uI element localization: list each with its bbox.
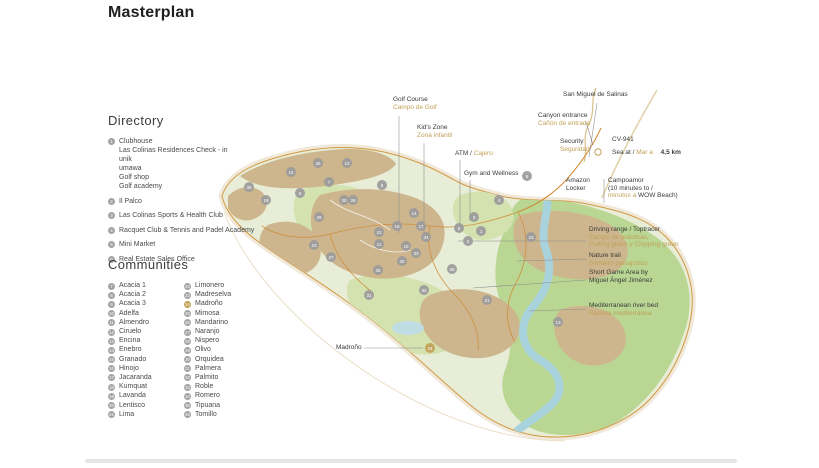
number-badge: 19	[108, 393, 115, 400]
community-item[interactable]: 32Palmito	[184, 373, 231, 382]
map-marker-number: 25	[315, 161, 321, 166]
number-badge: 36	[184, 411, 191, 418]
map-marker-number: 24	[427, 346, 433, 351]
label-security-es: Seguridad	[560, 146, 590, 153]
number-badge: 25	[184, 310, 191, 317]
community-item[interactable]: 10Adelfa	[108, 309, 170, 318]
communities-heading: Communities	[108, 257, 278, 272]
community-item-label: Tipuana	[195, 402, 220, 409]
number-badge: 8	[108, 292, 115, 299]
number-badge: 33	[184, 384, 191, 391]
label-madrono: Madroño	[336, 344, 362, 352]
community-item-label: Hinojo	[119, 365, 139, 372]
community-item[interactable]: 22Limonero	[184, 281, 231, 290]
map-marker-number: 27	[328, 255, 334, 260]
community-item[interactable]: 34Romero	[184, 391, 231, 400]
directory-list: 1ClubhouseLas Colinas Residences Check -…	[108, 137, 278, 264]
label-cv941: CV-941	[612, 136, 634, 144]
directory-item-label: Clubhouse	[119, 137, 228, 146]
label-campoamor-line1: Campoamor	[608, 177, 644, 184]
map-marker-number: 5	[458, 226, 461, 231]
number-badge: 23	[184, 292, 191, 299]
community-item-label: Palmito	[195, 374, 218, 381]
communities-column-2: 22Limonero23Madreselva24Madroño25Mimosa2…	[184, 281, 231, 419]
community-item[interactable]: 13Encina	[108, 336, 170, 345]
number-badge: 2	[108, 198, 115, 205]
number-badge: 5	[108, 241, 115, 248]
map-marker-number: 8	[381, 183, 384, 188]
label-canyon-en: Canyon entrance	[538, 112, 588, 119]
label-golf-course-en: Golf Course	[393, 96, 428, 103]
community-item[interactable]: 9Acacia 3	[108, 299, 170, 308]
label-canyon-entrance: Canyon entrance Cañón de entrada	[538, 112, 590, 127]
directory-item[interactable]: 4Racquet Club & Tennis and Padel Academy	[108, 226, 278, 235]
community-item[interactable]: 23Madreselva	[184, 290, 231, 299]
directory-item[interactable]: 1ClubhouseLas Colinas Residences Check -…	[108, 137, 278, 191]
directory-section: Directory 1ClubhouseLas Colinas Residenc…	[108, 113, 278, 269]
map-marker-number: 31	[366, 293, 372, 298]
community-item-label: Acacia 1	[119, 282, 146, 289]
community-item[interactable]: 26Mandarino	[184, 318, 231, 327]
label-campoamor-line3: WOW Beach)	[638, 192, 678, 199]
map-marker-number: 1	[480, 229, 483, 234]
number-badge: 29	[184, 347, 191, 354]
label-atm-es: Cajero	[474, 150, 493, 157]
number-badge: 18	[108, 384, 115, 391]
label-cv941-text: CV-941	[612, 136, 634, 143]
community-item[interactable]: 14Enebro	[108, 345, 170, 354]
page-title: Masterplan	[108, 4, 194, 22]
number-badge: 34	[184, 393, 191, 400]
community-item-label: Palmera	[195, 365, 221, 372]
community-item-label: Lima	[119, 411, 134, 418]
map-marker-number: 19	[403, 244, 409, 249]
number-badge: 4	[108, 227, 115, 234]
label-nature-trail: Nature trail Sendero paisajístico	[589, 252, 648, 267]
community-item[interactable]: 8Acacia 2	[108, 290, 170, 299]
directory-item-subline: umawa	[119, 164, 228, 173]
community-item-label: Limonero	[195, 282, 224, 289]
label-atm-en: ATM /	[455, 150, 474, 157]
community-item-label: Lavanda	[119, 392, 146, 399]
label-amazon-line1: Amazon	[566, 177, 590, 184]
community-item-label: Mandarino	[195, 319, 228, 326]
directory-item-subline: Golf shop	[119, 173, 228, 182]
map-marker-number: 20	[341, 198, 347, 203]
map-marker-number: 22	[376, 230, 382, 235]
number-badge: 10	[108, 310, 115, 317]
map-marker-number: 33	[413, 251, 419, 256]
label-san-miguel: San Miguel de Salinas	[563, 91, 628, 99]
map-marker-number: 29	[316, 215, 322, 220]
community-item-label: Almendro	[119, 319, 149, 326]
community-item[interactable]: 27Naranjo	[184, 327, 231, 336]
community-item-label: Acacia 3	[119, 300, 146, 307]
map-marker-number: 17	[418, 224, 424, 229]
number-badge: 31	[184, 365, 191, 372]
map-marker-number: 36	[375, 268, 381, 273]
label-gym: Gym and Wellness	[464, 170, 518, 178]
lake	[392, 321, 424, 335]
community-item[interactable]: 11Almendro	[108, 318, 170, 327]
label-driving-range-es2: Putting green y Chipping green	[589, 241, 679, 248]
community-item[interactable]: 29Olivo	[184, 345, 231, 354]
community-item[interactable]: 25Mimosa	[184, 309, 231, 318]
map-marker-number: 15	[288, 170, 294, 175]
map-marker-number: 10	[311, 243, 317, 248]
map-marker-number: 13	[555, 320, 561, 325]
community-item[interactable]: 28Nispero	[184, 336, 231, 345]
directory-item-subline: Las Colinas Residences Check - in	[119, 146, 228, 155]
label-golf-course: Golf Course Campo de Golf	[393, 96, 437, 111]
directory-item[interactable]: 3Las Colinas Sports & Health Club	[108, 211, 278, 220]
community-item-label: Acacia 2	[119, 291, 146, 298]
map-marker-number: 7	[328, 180, 331, 185]
community-item-label: Ciruelo	[119, 328, 141, 335]
label-gym-en: Gym and Wellness	[464, 170, 518, 177]
number-badge: 12	[108, 329, 115, 336]
number-badge: 7	[108, 283, 115, 290]
label-canyon-es: Cañón de entrada	[538, 120, 590, 127]
community-item[interactable]: 24Madroño	[184, 299, 231, 308]
community-item-label: Adelfa	[119, 310, 139, 317]
number-badge: 15	[108, 356, 115, 363]
community-item[interactable]: 16Hinojo	[108, 364, 170, 373]
label-sea-es: Mar a	[636, 149, 653, 156]
map-marker-number: 6	[526, 174, 529, 179]
community-item[interactable]: 35Tipuana	[184, 400, 231, 409]
community-item[interactable]: 21Lima	[108, 410, 170, 419]
community-item[interactable]: 30Orquidea	[184, 355, 231, 364]
number-badge: 28	[184, 338, 191, 345]
community-item[interactable]: 20Lentisco	[108, 400, 170, 409]
community-item-label: Granado	[119, 356, 146, 363]
label-short-game-line1: Short Game Area by	[589, 269, 648, 276]
label-driving-range-es1: Campo de prácticas,	[589, 234, 649, 241]
label-short-game-line2: Miguel Ángel Jiménez	[589, 277, 653, 284]
community-item-label: Roble	[195, 383, 213, 390]
directory-item[interactable]: 2Il Palco	[108, 197, 278, 206]
label-security: Security Seguridad	[560, 138, 590, 153]
map-marker-number: 32	[421, 288, 427, 293]
map-marker-number: 16	[394, 224, 400, 229]
bottom-divider	[85, 459, 737, 463]
map-marker-number: 12	[344, 161, 350, 166]
number-badge: 16	[108, 365, 115, 372]
community-item[interactable]: 17Jacaranda	[108, 373, 170, 382]
label-campoamor-es: minutos a	[608, 192, 638, 199]
label-river-bed-es: Rambla mediterránea	[589, 310, 652, 317]
directory-heading: Directory	[108, 113, 278, 128]
map-marker-number: 26	[449, 267, 455, 272]
map-marker-number: 23	[528, 235, 534, 240]
community-item-label: Madroño	[195, 300, 223, 307]
map-marker-number: 2	[467, 239, 470, 244]
map-marker-number: 21	[484, 298, 490, 303]
label-nature-trail-es: Sendero paisajístico	[589, 260, 648, 267]
number-badge: 30	[184, 356, 191, 363]
directory-item-label: Las Colinas Sports & Health Club	[119, 211, 223, 220]
number-badge: 17	[108, 374, 115, 381]
label-sea-en: Sea at /	[612, 149, 634, 156]
community-item-label: Kumquat	[119, 383, 147, 390]
directory-item-label: Mini Market	[119, 240, 155, 249]
label-amazon-line2: Locker	[566, 185, 586, 192]
number-badge: 32	[184, 374, 191, 381]
label-driving-range: Driving range / Toptracer Campo de práct…	[589, 226, 679, 249]
community-item-label: Enebro	[119, 346, 142, 353]
directory-item[interactable]: 5Mini Market	[108, 240, 278, 249]
number-badge: 24	[184, 301, 191, 308]
map-marker-number: 28	[350, 198, 356, 203]
label-river-bed: Mediterranean river bed Rambla mediterrá…	[589, 302, 658, 317]
number-badge: 3	[108, 212, 115, 219]
number-badge: 11	[108, 319, 115, 326]
number-badge: 35	[184, 402, 191, 409]
community-item-label: Nispero	[195, 337, 219, 344]
communities-section: Communities 7Acacia 18Acacia 29Acacia 31…	[108, 257, 278, 419]
communities-column-1: 7Acacia 18Acacia 29Acacia 310Adelfa11Alm…	[108, 281, 170, 419]
community-item[interactable]: 12Ciruelo	[108, 327, 170, 336]
community-item-label: Lentisco	[119, 402, 145, 409]
community-item[interactable]: 36Tomillo	[184, 410, 231, 419]
map-marker-number: 34	[423, 235, 429, 240]
label-amazon-locker: Amazon Locker	[566, 177, 590, 192]
community-item-label: Tomillo	[195, 411, 217, 418]
map-marker-number: 3	[473, 215, 476, 220]
community-item-label: Orquidea	[195, 356, 224, 363]
label-river-bed-en: Mediterranean river bed	[589, 302, 658, 309]
community-item-label: Mimosa	[195, 310, 220, 317]
label-campoamor-line2: (10 minutes to /	[608, 185, 653, 192]
community-item-label: Jacaranda	[119, 374, 152, 381]
community-item-label: Encina	[119, 337, 140, 344]
community-item-label: Madreselva	[195, 291, 231, 298]
map-marker-number: 30	[399, 259, 405, 264]
label-sea-distance: Sea at / Mar a 4,5 km	[612, 149, 681, 157]
label-driving-range-en: Driving range / Toptracer	[589, 226, 660, 233]
map-marker-number: 14	[411, 211, 417, 216]
label-sea-distance-value: 4,5 km	[661, 149, 681, 157]
label-security-en: Security	[560, 138, 583, 145]
directory-item-label: Racquet Club & Tennis and Padel Academy	[119, 226, 254, 235]
directory-item-subline: Golf academy	[119, 182, 228, 191]
community-item[interactable]: 15Granado	[108, 355, 170, 364]
label-short-game: Short Game Area by Miguel Ángel Jiménez	[589, 269, 653, 284]
community-item-label: Romero	[195, 392, 220, 399]
number-badge: 1	[108, 138, 115, 145]
number-badge: 20	[108, 402, 115, 409]
map-marker-number: 4	[498, 198, 501, 203]
number-badge: 22	[184, 283, 191, 290]
number-badge: 26	[184, 319, 191, 326]
label-nature-trail-en: Nature trail	[589, 252, 621, 259]
community-item-label: Olivo	[195, 346, 211, 353]
community-item[interactable]: 7Acacia 1	[108, 281, 170, 290]
number-badge: 21	[108, 411, 115, 418]
label-atm: ATM / Cajero	[455, 150, 493, 158]
number-badge: 9	[108, 301, 115, 308]
community-item[interactable]: 19Lavanda	[108, 391, 170, 400]
label-kids-zone-es: Zona infantil	[417, 132, 452, 139]
community-item[interactable]: 18Kumquat	[108, 382, 170, 391]
security-gate	[595, 149, 601, 155]
number-badge: 14	[108, 347, 115, 354]
directory-item-subline: unik	[119, 155, 228, 164]
community-item[interactable]: 33Roble	[184, 382, 231, 391]
label-campoamor: Campoamor (10 minutes to / minutos a WOW…	[608, 177, 678, 200]
label-san-miguel-text: San Miguel de Salinas	[563, 91, 628, 98]
number-badge: 13	[108, 338, 115, 345]
label-kids-zone-en: Kid's Zone	[417, 124, 448, 131]
community-item-label: Naranjo	[195, 328, 220, 335]
number-badge: 27	[184, 329, 191, 336]
directory-item-label: Il Palco	[119, 197, 142, 206]
map-marker-number: 9	[299, 191, 302, 196]
label-madrono-text: Madroño	[336, 344, 362, 351]
label-kids-zone: Kid's Zone Zona infantil	[417, 124, 452, 139]
community-item[interactable]: 31Palmera	[184, 364, 231, 373]
map-marker-number: 11	[377, 242, 382, 247]
label-golf-course-es: Campo de Golf	[393, 104, 437, 111]
